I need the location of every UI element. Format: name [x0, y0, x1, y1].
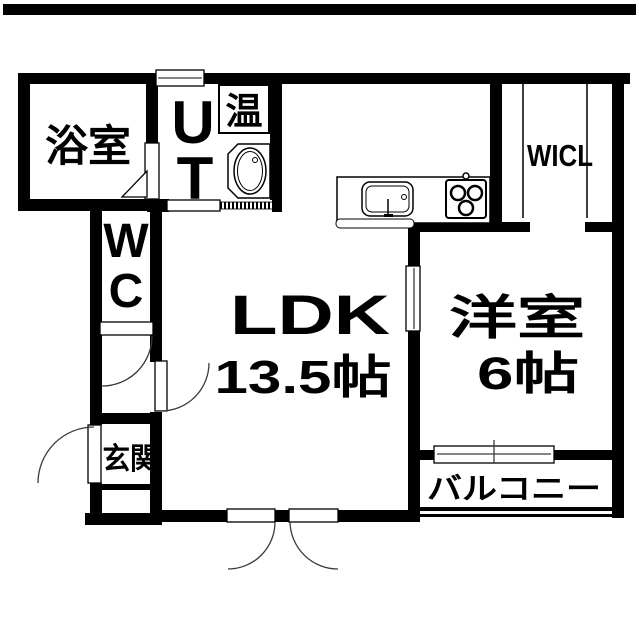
floor-plan: 浴室 U T 温 WICL W C LDK 13.5帖 洋室 6帖 玄関 バルコ… — [0, 0, 639, 640]
image-top-border — [3, 4, 636, 15]
room-size-western: 6帖 — [477, 348, 579, 399]
kitchen-sink-icon — [362, 182, 413, 217]
room-label-wc-line2: C — [109, 265, 144, 318]
gas-stove-icon — [446, 173, 486, 218]
ldk-westroom-sliding-door — [406, 266, 420, 331]
ldk-double-door-right — [289, 509, 338, 569]
room-label-wc-line1: W — [103, 215, 149, 268]
room-label-bathroom: 浴室 — [45, 123, 131, 171]
wall-top — [18, 73, 630, 84]
water-heater-label: 温 — [226, 91, 263, 132]
hall-ldk-door — [155, 361, 209, 411]
wall-ldk-bottom-2 — [275, 510, 289, 522]
wall-westroom-balcony-left — [408, 450, 435, 460]
wall-genkan-bottom — [85, 513, 162, 525]
balcony-rail-inner — [418, 514, 620, 517]
room-label-entrance: 玄関 — [103, 442, 158, 476]
wall-bath-ut-divider — [146, 84, 158, 144]
balcony-rail-outer — [418, 507, 620, 511]
room-label-ldk: LDK — [230, 283, 390, 346]
wall-genkan-top — [90, 413, 162, 424]
wall-right-outer — [612, 73, 624, 518]
wash-basin-icon — [228, 144, 270, 198]
genkan-step-line — [97, 484, 157, 490]
room-label-wicl: WICL — [527, 138, 593, 173]
wall-ut-bottom-left — [147, 199, 169, 212]
wall-ldk-bottom-3 — [338, 510, 420, 522]
room-label-western: 洋室 — [449, 291, 585, 344]
wall-westroom-balcony-right — [553, 450, 622, 460]
wall-ut-right — [270, 84, 282, 200]
wall-ldk-west-lower — [408, 330, 420, 510]
room-size-ldk: 13.5帖 — [215, 351, 392, 403]
wall-corridor-left-upper — [90, 199, 102, 425]
ut-window — [156, 70, 204, 86]
room-label-balcony: バルコニー — [427, 473, 601, 506]
room-label-utility-line2: T — [177, 145, 214, 212]
wc-door — [100, 322, 153, 386]
entrance-door — [38, 425, 101, 483]
wall-ldk-bottom-1 — [162, 510, 228, 522]
ldk-double-door-left — [227, 509, 275, 569]
wall-bath-left — [18, 73, 30, 210]
wall-wicl-left — [490, 84, 502, 222]
westroom-balcony-window — [434, 440, 554, 463]
